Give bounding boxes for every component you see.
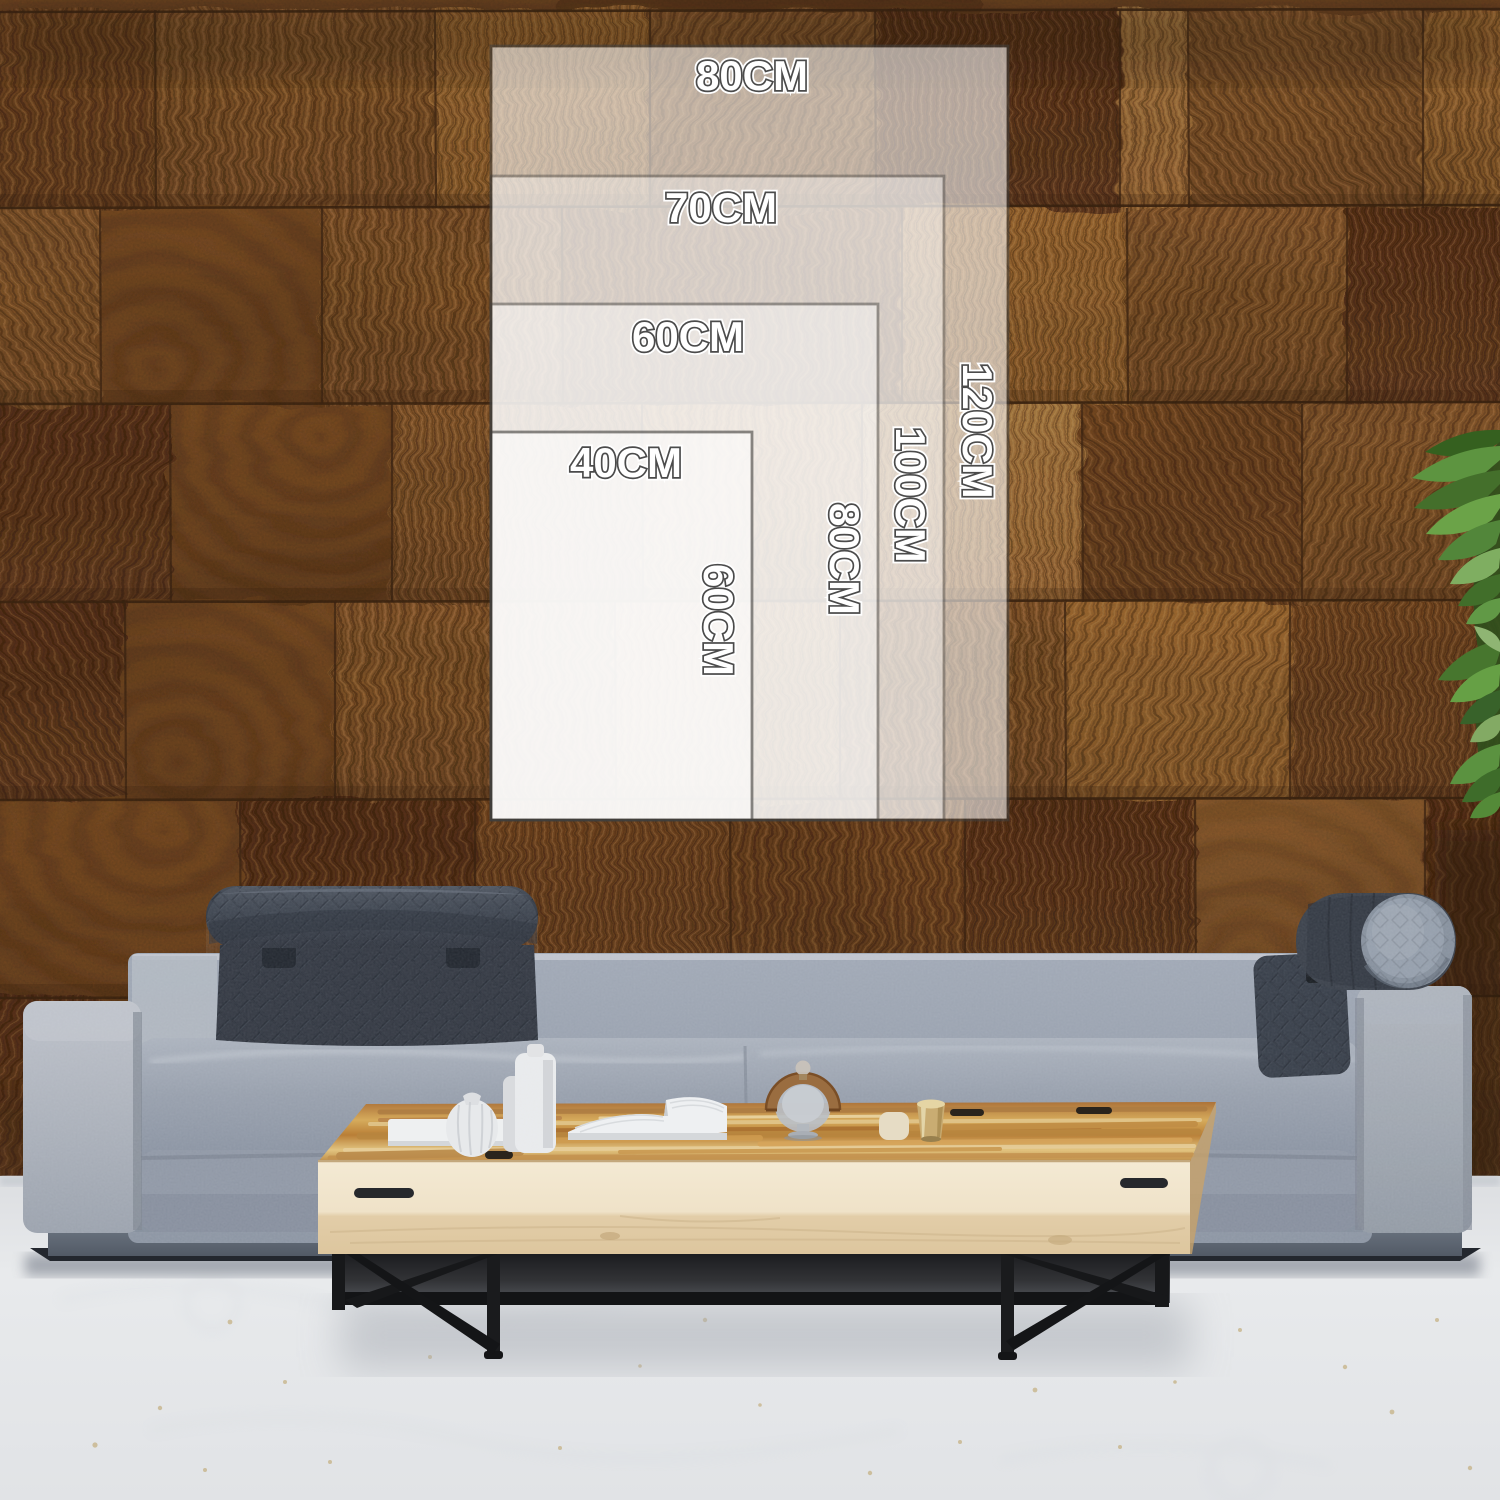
svg-text:70CM: 70CM — [665, 184, 777, 231]
svg-text:80CM: 80CM — [696, 52, 808, 99]
svg-text:120CM: 120CM — [954, 363, 1001, 498]
svg-text:60CM: 60CM — [632, 313, 744, 360]
svg-text:40CM: 40CM — [570, 439, 682, 486]
svg-text:80CM: 80CM — [821, 503, 868, 615]
svg-text:60CM: 60CM — [695, 564, 742, 676]
svg-text:100CM: 100CM — [887, 427, 934, 562]
